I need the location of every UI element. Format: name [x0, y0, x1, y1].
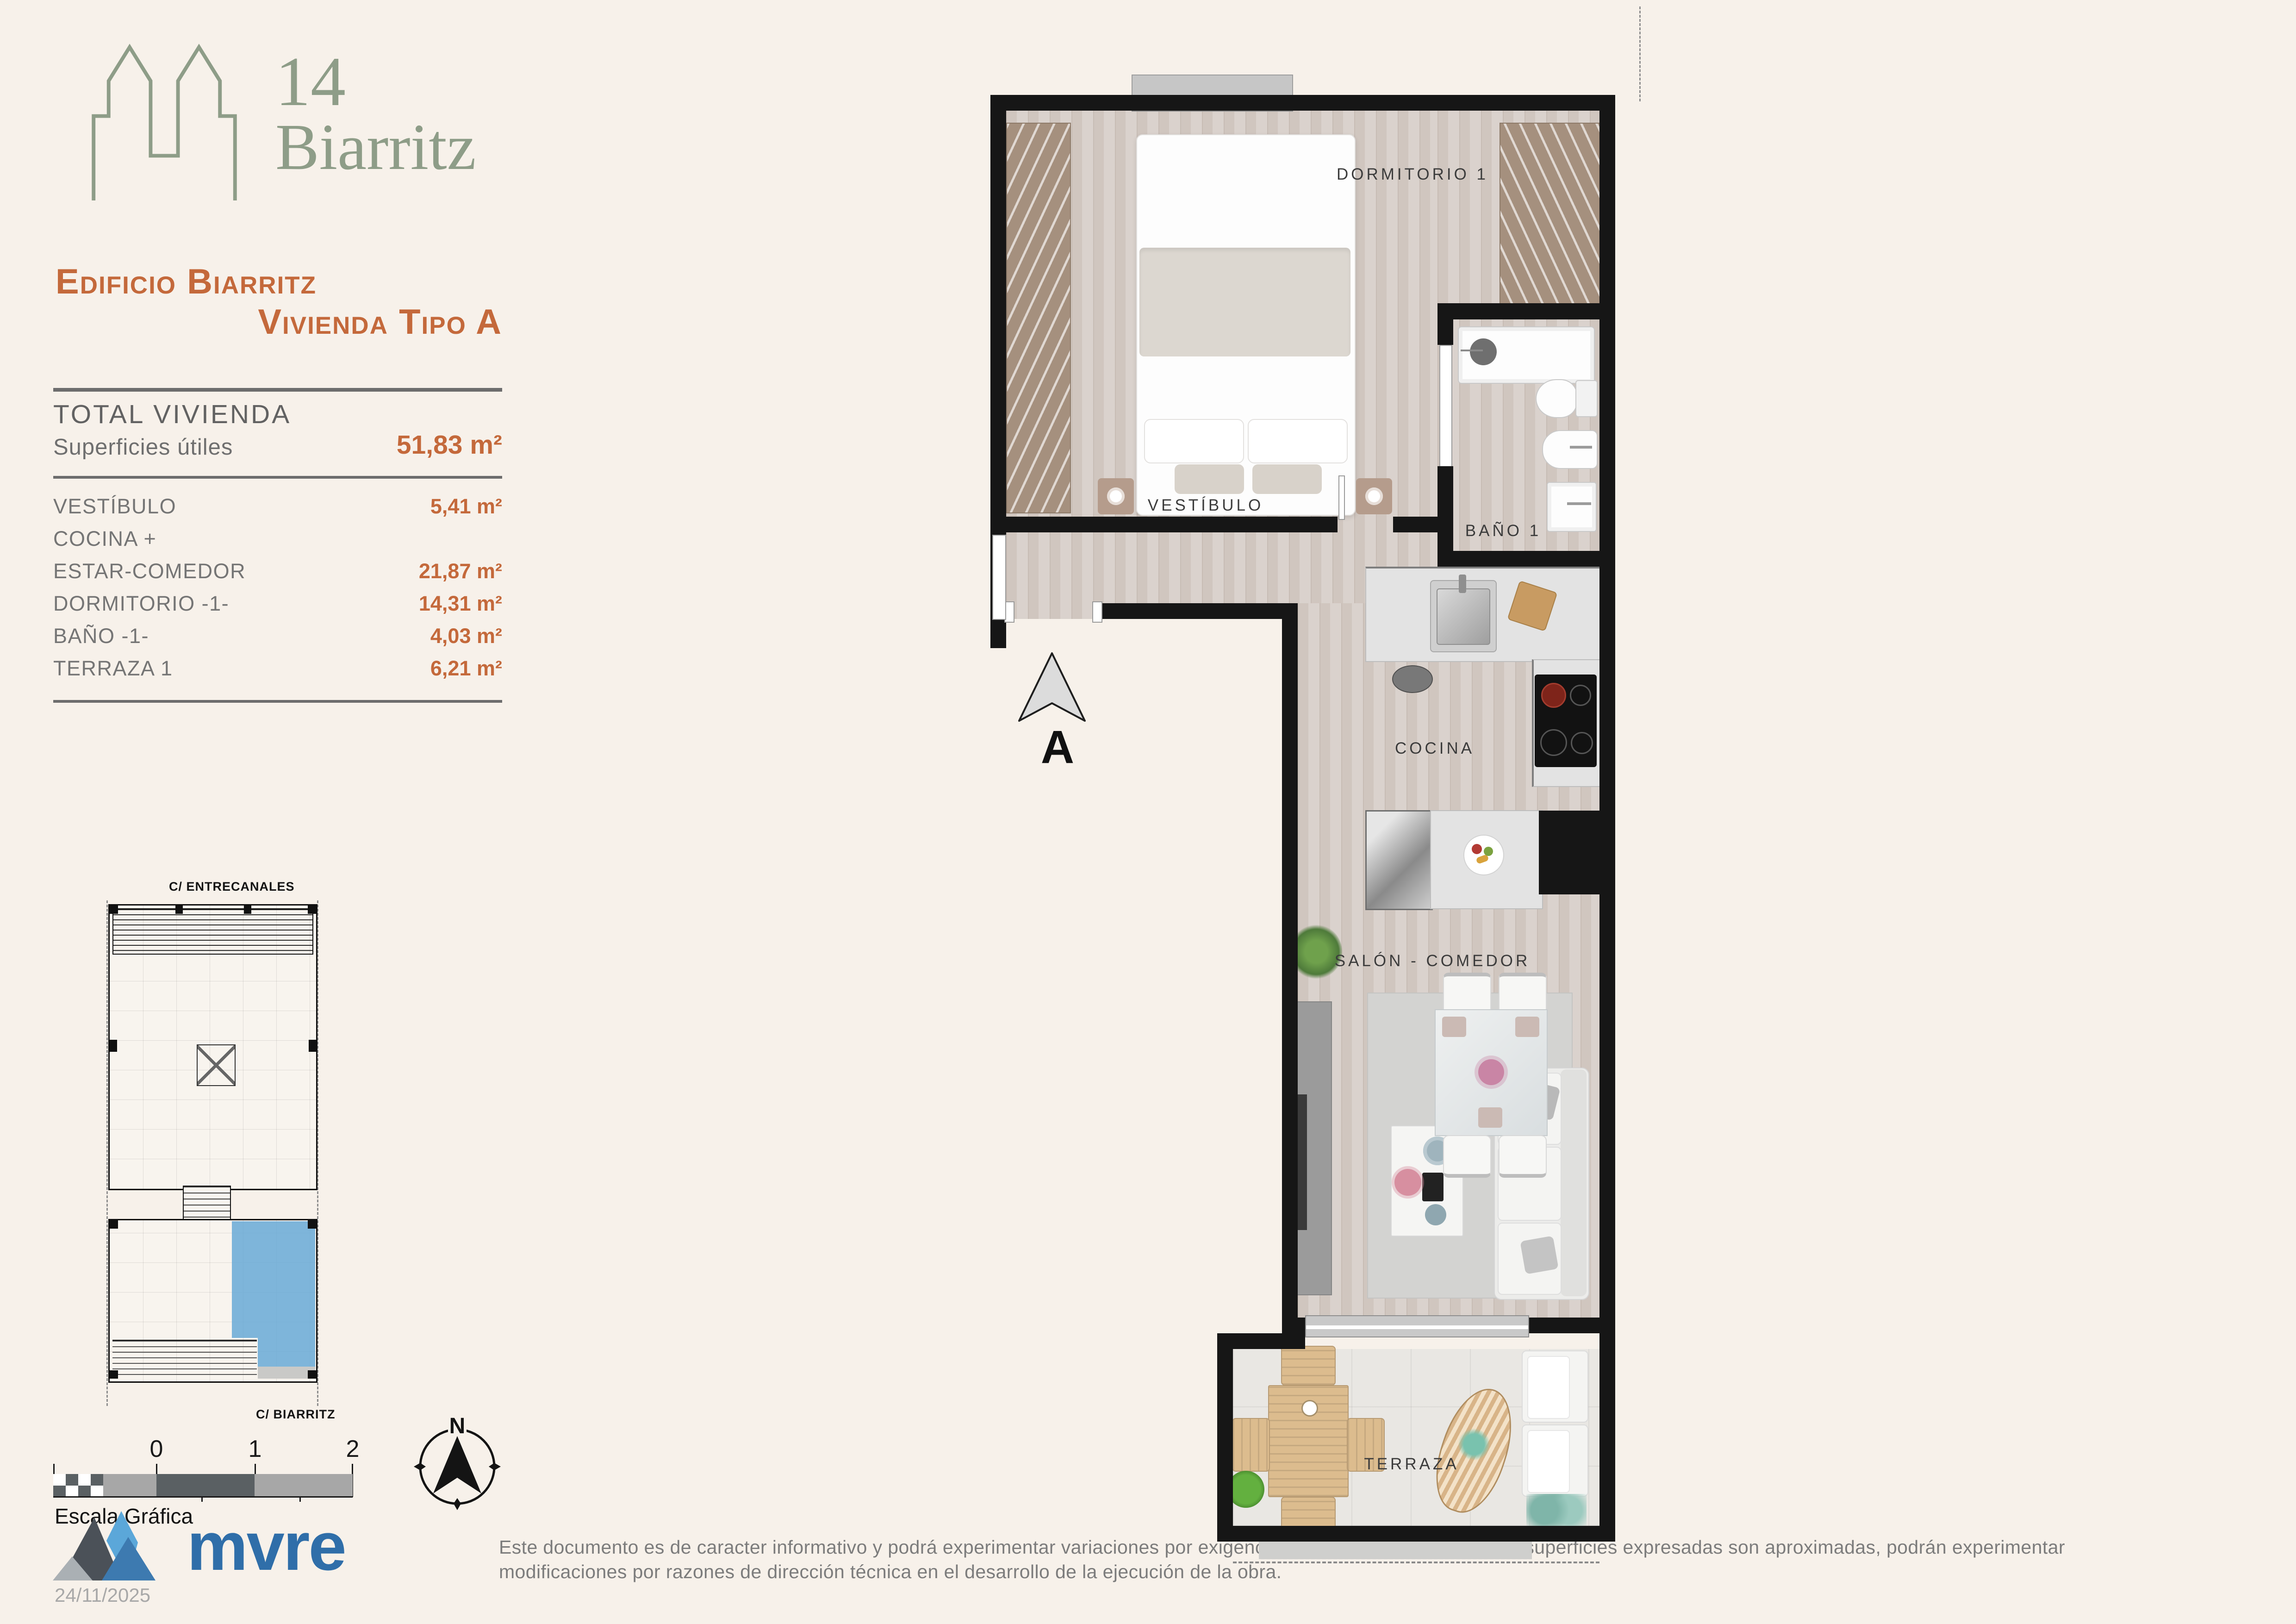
terrace-lounger-plant [1458, 1428, 1490, 1461]
bidet-faucet [1570, 446, 1592, 449]
compass: N [411, 1412, 504, 1512]
site-upper-block [108, 904, 317, 1190]
terrace-outer-band [1259, 1542, 1532, 1559]
centerpiece-flowers [1478, 1059, 1504, 1085]
terrace-table [1268, 1385, 1349, 1497]
row-value: 4,03 m² [53, 624, 502, 648]
scale-band-dark [156, 1474, 255, 1497]
terrace-chair [1232, 1418, 1270, 1472]
room-label-bano: BAÑO 1 [1465, 522, 1541, 540]
table-row: COCINA + [53, 527, 502, 555]
table-row: TERRAZA 1 6,21 m² [53, 656, 502, 684]
site-unit-highlight [232, 1221, 315, 1338]
place-setting [1515, 1017, 1539, 1037]
boundary-dashed-line [1639, 6, 1641, 101]
fridge [1365, 810, 1433, 910]
kitchen-faucet [1459, 575, 1466, 593]
wall [990, 95, 1615, 111]
scale-num-1: 1 [249, 1435, 262, 1463]
vestibule-window [992, 535, 1006, 620]
street-label-bottom: C/ BIARRITZ [256, 1407, 335, 1422]
row-label: COCINA + [53, 527, 156, 550]
room-label-vestibulo: VESTÍBULO [1148, 496, 1263, 515]
table-row: DORMITORIO -1- 14,31 m² [53, 592, 502, 619]
wall [1437, 303, 1615, 319]
table-row: VESTÍBULO 5,41 m² [53, 494, 502, 522]
tablet [1422, 1173, 1444, 1201]
wall [1393, 517, 1437, 532]
bed-blanket [1139, 248, 1350, 356]
title-block: Edificio Biarritz Vivienda Tipo A [56, 262, 502, 343]
scale-bar: 0 1 2 [53, 1435, 359, 1500]
nightstand-lamp [1107, 487, 1125, 505]
entrance-arrow-icon [1017, 651, 1087, 723]
row-value: 6,21 m² [53, 656, 502, 681]
wall [1282, 619, 1298, 1333]
wall [1437, 466, 1453, 551]
scale-band-checker [53, 1474, 103, 1497]
site-elevator-core [197, 1044, 236, 1086]
decor-flower [1394, 1169, 1421, 1196]
dining-chair [1499, 1135, 1547, 1178]
brand-name: Biarritz [275, 114, 476, 180]
document-date: 24/11/2025 [55, 1584, 150, 1606]
row-value: 14,31 m² [53, 592, 502, 616]
brand-building-icon [65, 41, 264, 200]
wall [1006, 517, 1338, 532]
terrace-dashed-line [1233, 1562, 1599, 1563]
wall [1437, 551, 1615, 567]
burner [1570, 685, 1591, 706]
shower-head [1470, 338, 1497, 365]
row-value: 5,41 m² [53, 494, 502, 518]
title-line-1: Edificio Biarritz [56, 262, 502, 302]
total-value: 51,83 m² [53, 430, 502, 460]
brand-number: 14 [275, 46, 346, 117]
bed-pillow [1175, 464, 1244, 494]
bed-pillow [1144, 419, 1244, 463]
table-row: BAÑO -1- 4,03 m² [53, 624, 502, 652]
entrance-jamb [1092, 601, 1102, 623]
row-value: 21,87 m² [53, 559, 502, 583]
compass-north-label: N [449, 1414, 466, 1438]
burner [1571, 732, 1593, 754]
dining-chair [1443, 1135, 1491, 1178]
bed-pillow [1248, 419, 1348, 463]
section-marker: A [1032, 721, 1083, 774]
shower-pipe [1461, 350, 1483, 351]
wall [1282, 1318, 1305, 1333]
room-label-salon: SALÓN - COMEDOR [1335, 952, 1531, 970]
fruit-bowl [1463, 835, 1504, 875]
bidet [1542, 430, 1598, 469]
washbasin [1547, 482, 1597, 532]
mvre-wordmark: mvre [187, 1512, 345, 1581]
terrace-plant [1526, 1494, 1587, 1526]
divider-bottom [53, 700, 502, 703]
room-label-terraza: TERRAZA [1364, 1455, 1459, 1474]
floor-plan: A DORMITORIO 1 BAÑO 1 VESTÍBULO COCINA S… [990, 95, 1615, 1562]
terrace-armchair [1522, 1424, 1588, 1497]
decor-bowl [1425, 1204, 1446, 1225]
terrace-chair [1281, 1346, 1336, 1386]
mvre-logo: mvre [52, 1510, 376, 1584]
property-line-left [106, 900, 108, 1406]
scale-band-light1 [103, 1474, 156, 1497]
wall [1527, 1318, 1615, 1333]
burner [1540, 729, 1567, 756]
place-setting [1478, 1107, 1502, 1128]
street-label-top: C/ ENTRECANALES [169, 880, 295, 894]
site-plan [106, 900, 319, 1406]
site-lower-block [108, 1219, 317, 1383]
room-label-dormitorio: DORMITORIO 1 [1337, 165, 1488, 184]
scale-num-2: 2 [346, 1435, 360, 1463]
room-label-cocina: COCINA [1395, 739, 1475, 758]
bedroom-window-sill [1132, 75, 1293, 97]
scale-band-light2 [255, 1474, 353, 1497]
sofa-pillow [1520, 1236, 1558, 1274]
bed-pillow [1252, 464, 1322, 494]
terrace-armchair [1522, 1350, 1588, 1423]
dining-table [1435, 1009, 1548, 1136]
wardrobe-left [1006, 123, 1071, 513]
cooktop [1535, 675, 1597, 767]
balcony-door [1305, 1315, 1529, 1337]
kitchen-sink-basin [1437, 588, 1490, 645]
wall [1437, 319, 1453, 345]
site-terrace-hatch [112, 1340, 257, 1379]
scale-num-0: 0 [150, 1435, 163, 1463]
wall [1101, 603, 1298, 619]
wall-kitchen-stub [1539, 811, 1599, 894]
divider-mid [53, 476, 502, 479]
toilet-tank [1575, 380, 1598, 417]
washbasin-faucet [1567, 502, 1591, 505]
door-leaf [1338, 475, 1345, 520]
wall [1217, 1333, 1233, 1542]
total-label: TOTAL VIVIENDA [53, 399, 291, 430]
table-row: ESTAR-COMEDOR 21,87 m² [53, 559, 502, 587]
mvre-mountains-icon [52, 1510, 181, 1582]
brand-logo: 14 Biarritz [65, 41, 509, 200]
extractor [1392, 665, 1433, 693]
site-louver-band [112, 908, 313, 955]
nightstand-lamp [1365, 487, 1383, 505]
terrace-bush [1227, 1471, 1264, 1508]
wardrobe-right [1500, 123, 1601, 315]
burner [1541, 683, 1566, 708]
place-setting [1442, 1017, 1466, 1037]
bathroom-sliding-door [1439, 345, 1452, 468]
wall [1217, 1526, 1615, 1542]
title-line-2: Vivienda Tipo A [56, 302, 502, 342]
toilet-bowl [1536, 379, 1577, 418]
site-unit-highlight-ext [258, 1338, 315, 1367]
sofa-back [1561, 1069, 1587, 1296]
site-gray-strip [258, 1367, 315, 1379]
divider-top [53, 388, 502, 392]
